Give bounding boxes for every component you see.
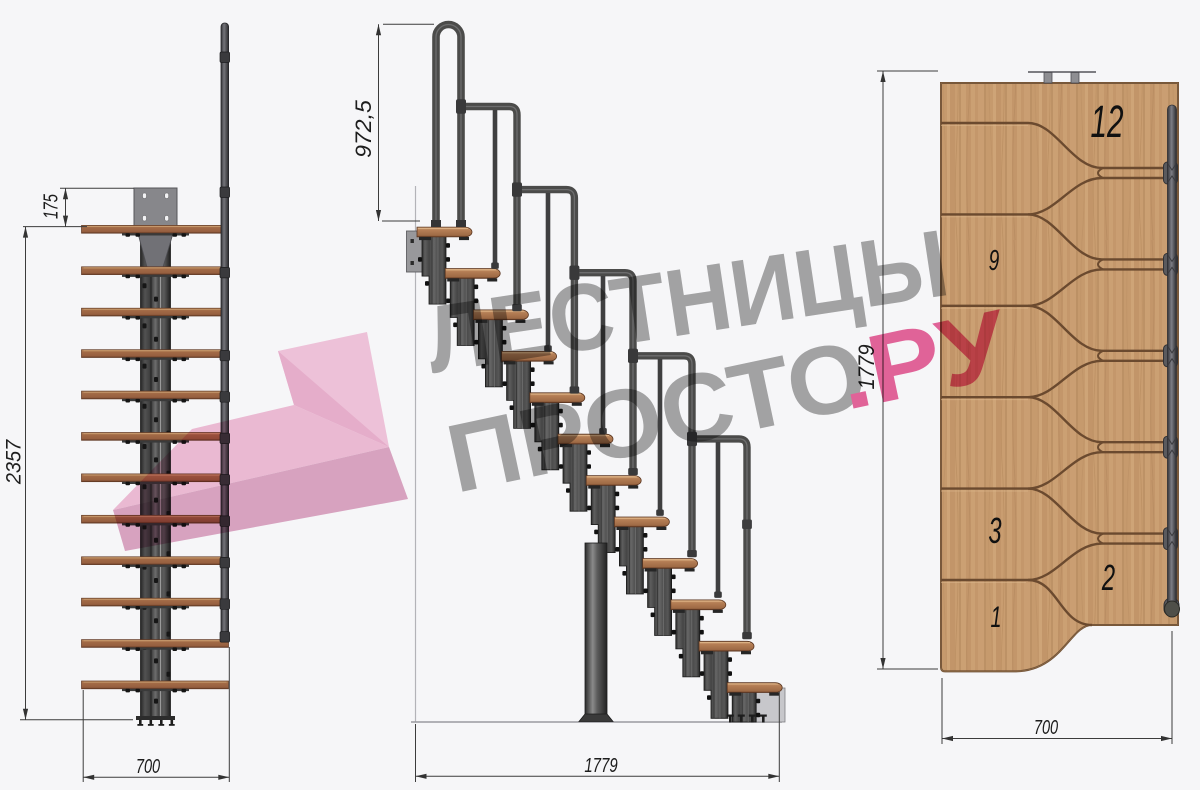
svg-text:3: 3: [988, 511, 1001, 551]
svg-text:1: 1: [990, 601, 1001, 634]
svg-text:700: 700: [1034, 716, 1059, 739]
svg-text:972,5: 972,5: [351, 100, 375, 158]
svg-text:12: 12: [1090, 97, 1123, 148]
svg-text:9: 9: [989, 245, 1000, 277]
svg-text:175: 175: [39, 194, 62, 219]
svg-text:2: 2: [1101, 558, 1115, 598]
svg-text:1779: 1779: [584, 754, 617, 777]
svg-text:700: 700: [136, 755, 161, 778]
svg-text:2357: 2357: [2, 438, 26, 485]
